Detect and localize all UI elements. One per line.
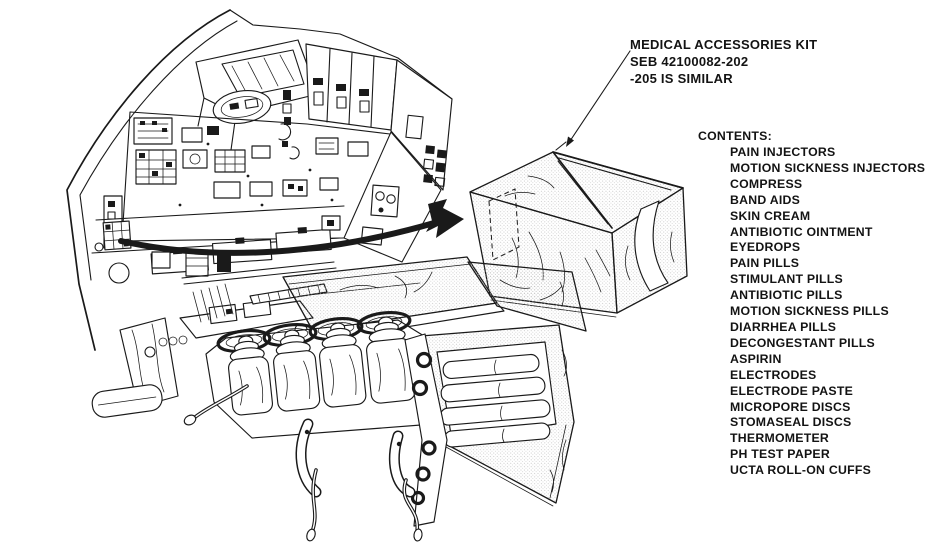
contents-item: THERMOMETER <box>730 431 925 447</box>
kit-label: MEDICAL ACCESSORIES KIT SEB 42100082-202… <box>630 36 817 87</box>
contents-header: CONTENTS: <box>698 129 925 143</box>
opened-medical-kit-illustration <box>183 257 586 542</box>
contents-item: EYEDROPS <box>730 240 925 256</box>
contents-item: PH TEST PAPER <box>730 447 925 463</box>
contents-item: DECONGESTANT PILLS <box>730 336 925 352</box>
contents-item: ANTIBIOTIC OINTMENT <box>730 225 925 241</box>
kit-straps <box>301 424 410 492</box>
contents-list-block: CONTENTS: PAIN INJECTORSMOTION SICKNESS … <box>698 129 925 479</box>
contents-item: MICROPORE DISCS <box>730 400 925 416</box>
contents-list: PAIN INJECTORSMOTION SICKNESS INJECTORSC… <box>698 145 925 479</box>
contents-item: PAIN INJECTORS <box>730 145 925 161</box>
contents-item: ELECTRODES <box>730 368 925 384</box>
contents-item: MOTION SICKNESS INJECTORS <box>730 161 925 177</box>
leader-line-arrow-icon <box>566 51 630 147</box>
contents-item: UCTA ROLL-ON CUFFS <box>730 463 925 479</box>
contents-item: MOTION SICKNESS PILLS <box>730 304 925 320</box>
kit-label-similar-note: -205 IS SIMILAR <box>630 70 817 87</box>
technical-drawing-page: MEDICAL ACCESSORIES KIT SEB 42100082-202… <box>0 0 952 550</box>
kit-label-title: MEDICAL ACCESSORIES KIT <box>630 36 817 53</box>
contents-item: ELECTRODE PASTE <box>730 384 925 400</box>
contents-item: PAIN PILLS <box>730 256 925 272</box>
contents-item: BAND AIDS <box>730 193 925 209</box>
kit-label-part-number: SEB 42100082-202 <box>630 53 817 70</box>
contents-item: ASPIRIN <box>730 352 925 368</box>
contents-item: STIMULANT PILLS <box>730 272 925 288</box>
contents-item: DIARRHEA PILLS <box>730 320 925 336</box>
contents-item: STOMASEAL DISCS <box>730 415 925 431</box>
contents-item: COMPRESS <box>730 177 925 193</box>
contents-item: SKIN CREAM <box>730 209 925 225</box>
contents-item: ANTIBIOTIC PILLS <box>730 288 925 304</box>
